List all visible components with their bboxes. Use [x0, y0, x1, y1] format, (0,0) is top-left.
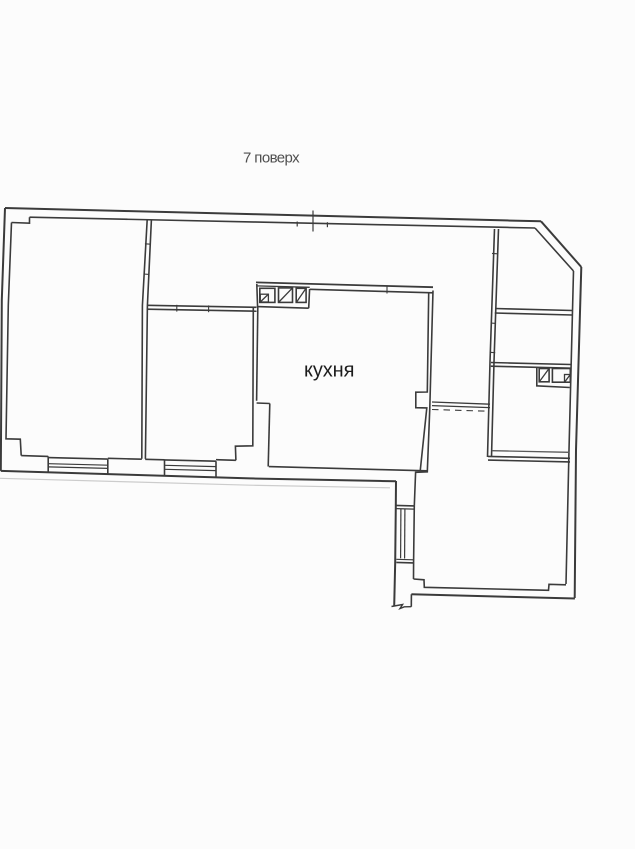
svg-text:кухня: кухня — [304, 360, 354, 382]
svg-text:7 поверх: 7 поверх — [243, 150, 300, 167]
